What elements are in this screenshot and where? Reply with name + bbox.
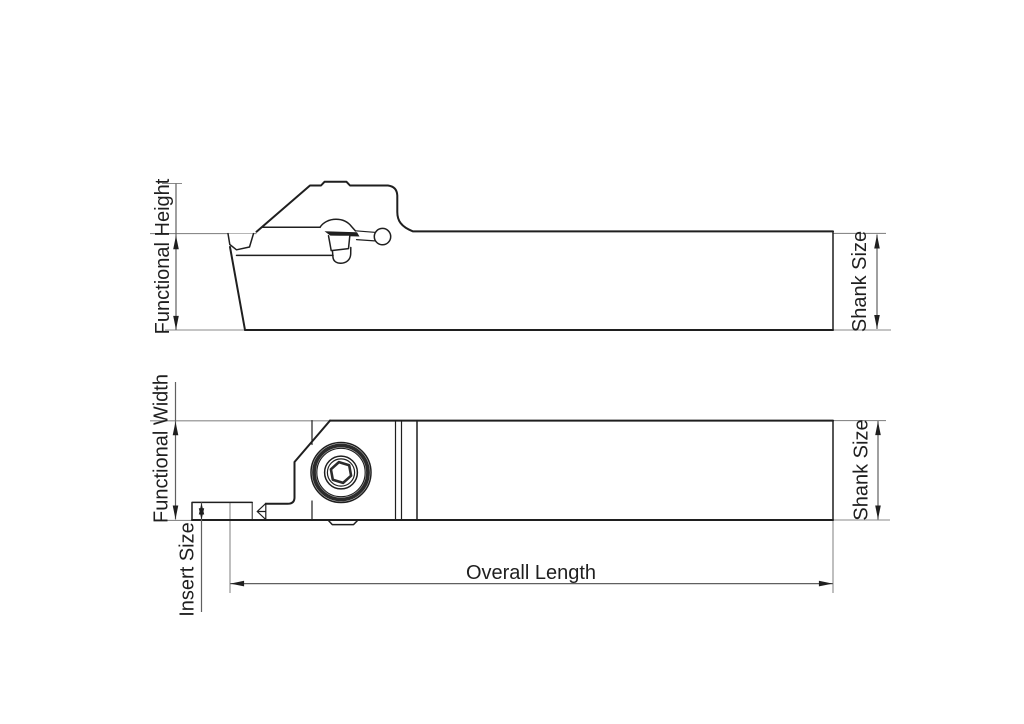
insert-size-label: Insert Size	[176, 522, 198, 616]
arrow-right-icon	[819, 581, 833, 587]
clamp-block	[329, 236, 350, 251]
clamp-joint-lines	[396, 421, 402, 520]
screw-shaded-ring	[314, 446, 368, 500]
shank-size-side-dimension: Shank Size	[849, 231, 880, 332]
side-view-front-edge	[230, 247, 245, 330]
arrow-left-icon	[230, 581, 244, 587]
functional-width-label: Functional Width	[150, 374, 172, 523]
shank-size-plan-label: Shank Size	[850, 419, 872, 520]
arrow-down-icon	[173, 506, 179, 520]
plan-view: Functional Width Insert Size Shank Size …	[150, 374, 890, 617]
overall-length-label: Overall Length	[466, 562, 596, 584]
insert-front-block	[228, 234, 254, 250]
technical-drawing-page: Functional Height Shank Size	[0, 0, 1024, 724]
screw-socket-hex	[331, 462, 351, 483]
arrow-down-icon	[173, 316, 179, 330]
functional-width-dimension: Functional Width	[150, 374, 178, 523]
screw-outer-circle	[311, 443, 371, 503]
clamp-screw	[311, 443, 371, 503]
overall-length-dimension: Overall Length	[230, 562, 833, 586]
clamp-lever-ball-end	[374, 228, 390, 244]
arrow-down-icon	[874, 315, 880, 329]
side-view-head-and-top-edge	[257, 182, 834, 232]
tool-holder-drawing: Functional Height Shank Size	[0, 0, 1024, 724]
arrow-down-icon	[875, 506, 881, 520]
shank-size-side-label: Shank Size	[849, 231, 871, 332]
arrow-up-icon	[173, 236, 179, 250]
functional-height-dimension: Functional Height	[152, 178, 179, 334]
arrow-up-icon	[874, 235, 880, 249]
shank-size-plan-dimension: Shank Size	[850, 419, 881, 520]
clamp-lever-hump	[320, 219, 356, 231]
arrow-up-icon	[173, 422, 179, 436]
clamp-slot-shadow	[325, 231, 360, 236]
side-view: Functional Height Shank Size	[150, 178, 891, 334]
arrow-up-icon	[875, 421, 881, 435]
functional-height-label: Functional Height	[152, 178, 174, 334]
screw-head-circle	[325, 456, 358, 489]
insert-wedge-clamp	[257, 503, 266, 519]
